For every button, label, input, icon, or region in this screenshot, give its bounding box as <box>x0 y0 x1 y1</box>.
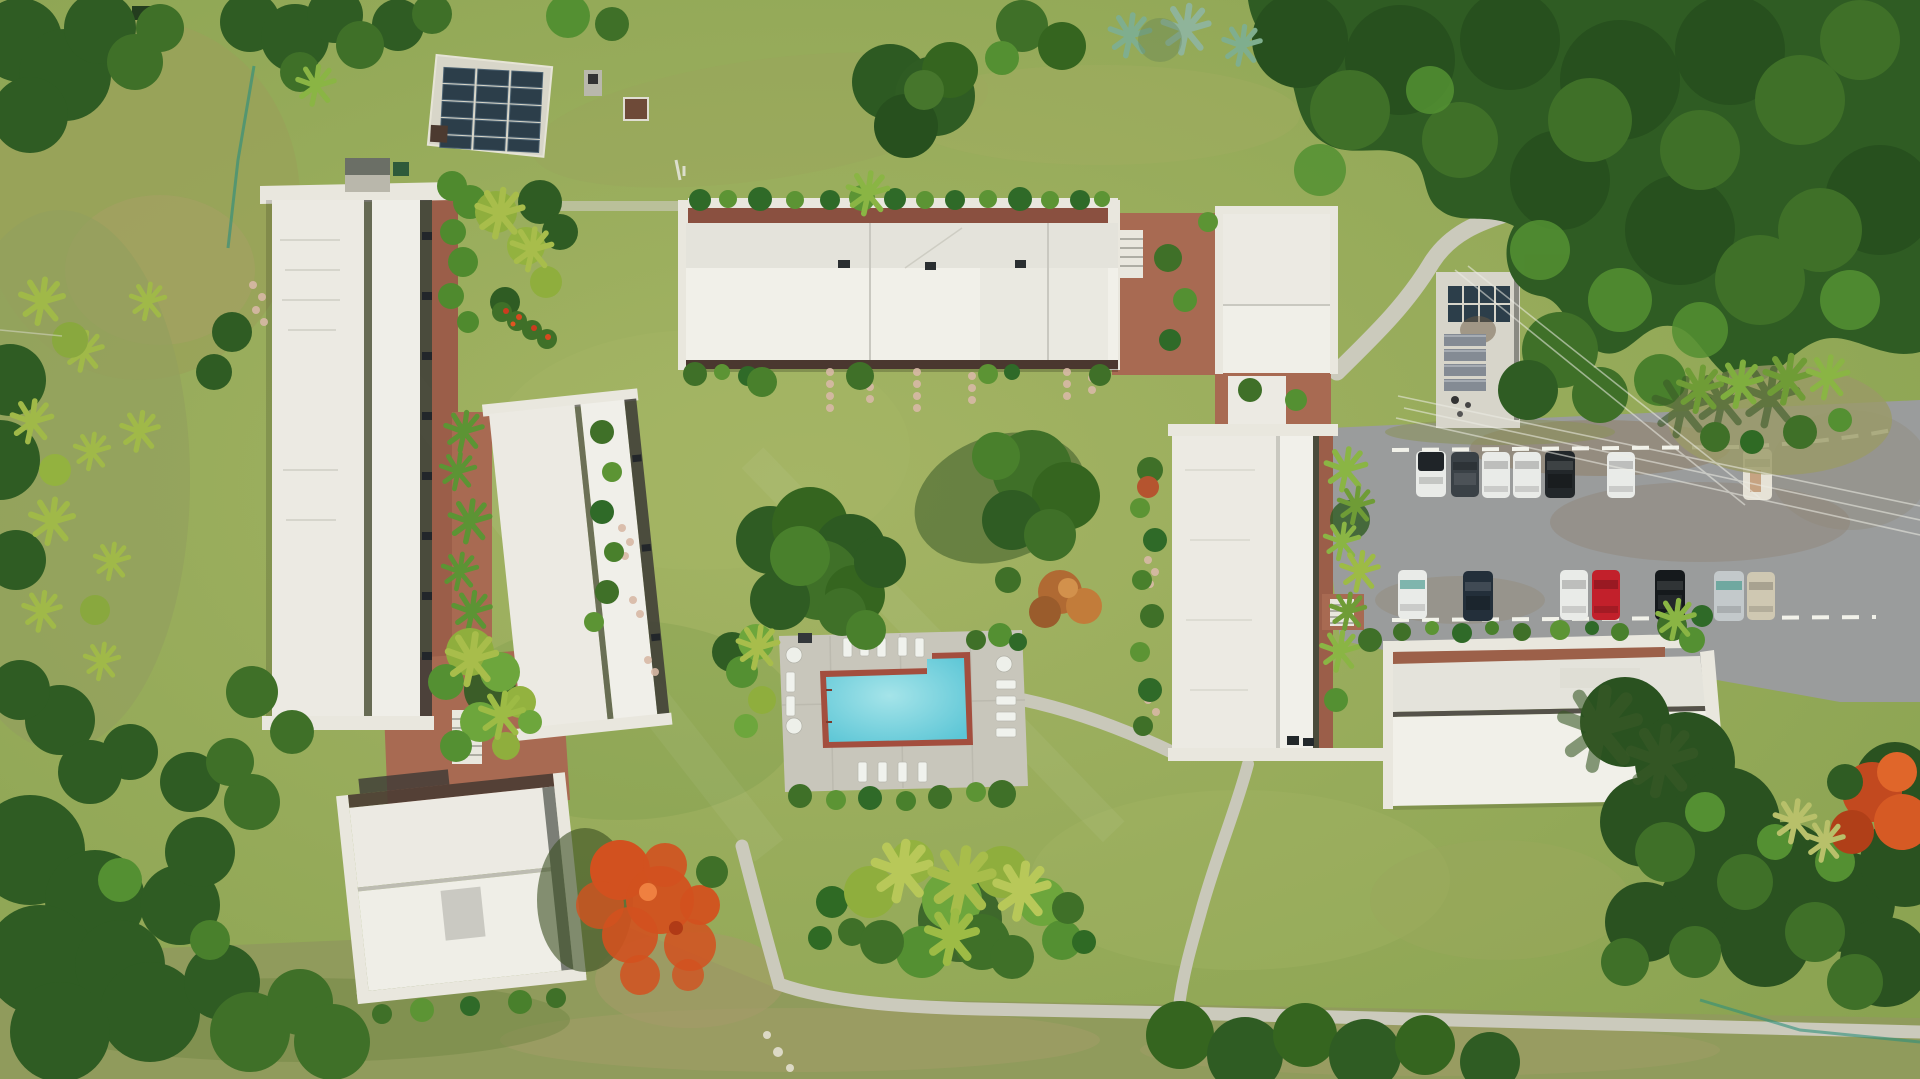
solar-array-ground <box>428 55 553 157</box>
pool-grill <box>798 633 812 643</box>
west-long-building <box>260 182 452 730</box>
brown-shed <box>624 98 648 120</box>
aerial-photo <box>0 0 1920 1079</box>
car-pickup <box>1416 451 1446 497</box>
north-center-building <box>678 198 1120 372</box>
car <box>1513 452 1541 498</box>
northeast-building <box>1215 206 1338 374</box>
shed-green <box>393 162 409 176</box>
car <box>1714 571 1744 621</box>
car <box>1560 570 1588 620</box>
car <box>1398 570 1427 619</box>
car-suv <box>1545 451 1575 498</box>
aerial-photo-canvas <box>0 0 1920 1079</box>
car <box>1747 572 1775 620</box>
car <box>1451 452 1479 497</box>
car <box>1607 452 1635 498</box>
car <box>1463 571 1493 621</box>
car-red <box>1592 570 1620 620</box>
car <box>1482 452 1510 498</box>
